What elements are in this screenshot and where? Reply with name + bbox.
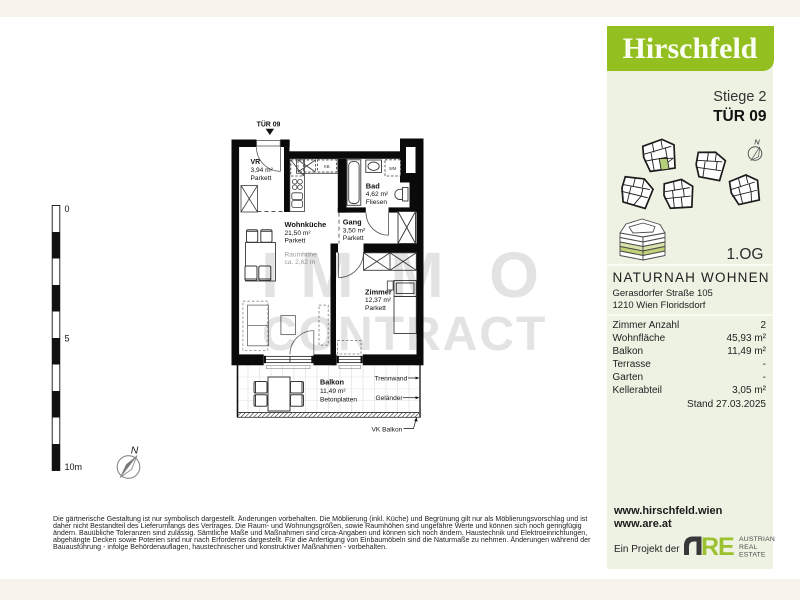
svg-text:5: 5 [65, 334, 70, 344]
svg-text:AUSTRIAN: AUSTRIAN [739, 536, 775, 543]
svg-text:KB: KB [324, 164, 330, 169]
svg-text:RE: RE [701, 533, 734, 557]
svg-text:12,37 m²: 12,37 m² [365, 297, 392, 304]
svg-text:WM: WM [389, 166, 397, 171]
svg-text:10m: 10m [65, 462, 83, 472]
svg-text:VR: VR [251, 159, 261, 166]
svg-text:Zimmer: Zimmer [365, 287, 392, 296]
svg-text:Fliesen: Fliesen [366, 199, 388, 206]
svg-text:ESTATE: ESTATE [739, 552, 766, 558]
svg-text:Balkon: Balkon [320, 378, 344, 387]
svg-text:N: N [131, 445, 139, 457]
svg-text:Wohnküche: Wohnküche [285, 220, 327, 229]
svg-text:REAL: REAL [739, 544, 758, 551]
svg-text:3,50 m²: 3,50 m² [343, 227, 366, 234]
svg-text:O: O [489, 239, 539, 311]
svg-text:Betonplatten: Betonplatten [320, 397, 357, 404]
svg-text:VK Balkon: VK Balkon [372, 427, 403, 434]
svg-text:4,62 m²: 4,62 m² [366, 191, 389, 198]
svg-text:Geländer: Geländer [376, 395, 404, 402]
svg-text:N: N [754, 138, 760, 147]
svg-text:3,94 m²: 3,94 m² [251, 167, 274, 174]
svg-text:TÜR 09: TÜR 09 [257, 119, 281, 128]
svg-text:M: M [300, 239, 353, 311]
svg-text:11,49 m²: 11,49 m² [320, 388, 346, 395]
svg-text:Bad: Bad [366, 181, 380, 190]
svg-text:CONTRACT: CONTRACT [262, 308, 547, 361]
svg-text:Parkett: Parkett [251, 175, 272, 182]
svg-text:Trennwand: Trennwand [375, 376, 408, 383]
svg-text:0: 0 [65, 204, 70, 214]
svg-text:Gang: Gang [343, 218, 362, 227]
svg-text:21,50 m²: 21,50 m² [285, 230, 312, 237]
svg-text:M: M [390, 239, 443, 311]
svg-text:I: I [261, 239, 279, 311]
